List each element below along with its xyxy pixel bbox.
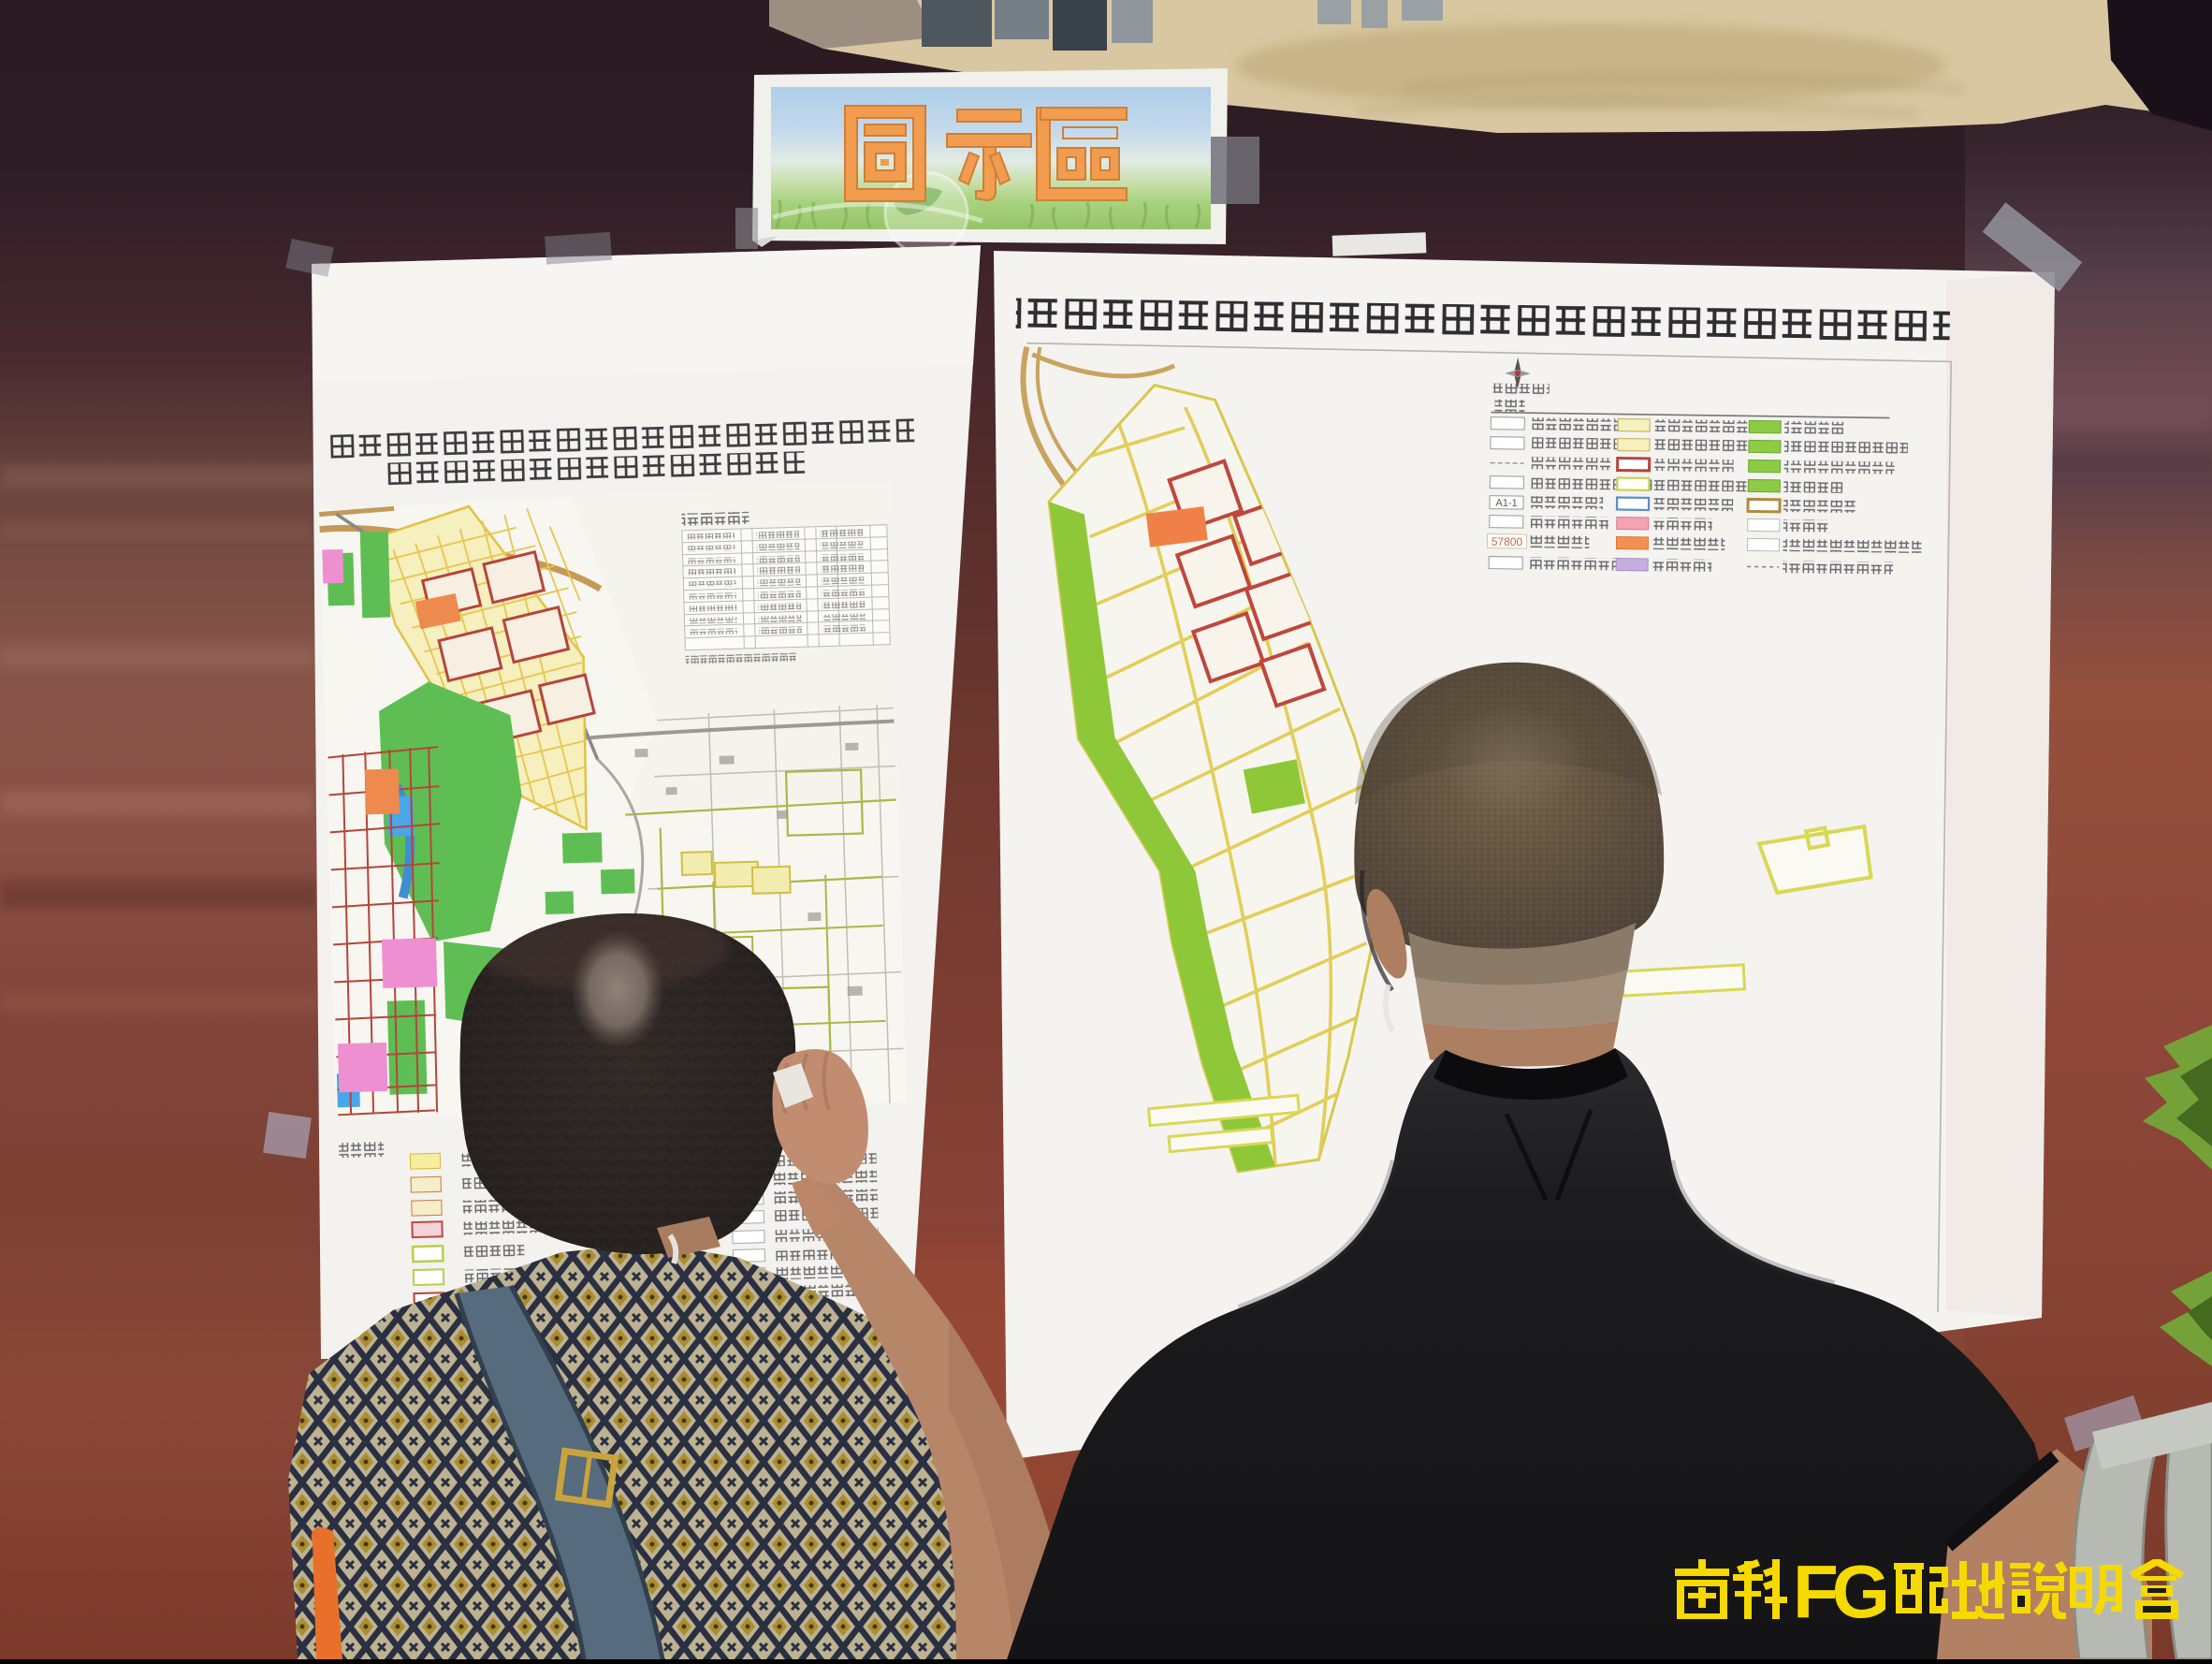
svg-text:FG: FG	[1793, 1550, 1890, 1633]
svg-text:A1-1: A1-1	[1495, 498, 1517, 509]
svg-text:57800: 57800	[1492, 535, 1523, 548]
